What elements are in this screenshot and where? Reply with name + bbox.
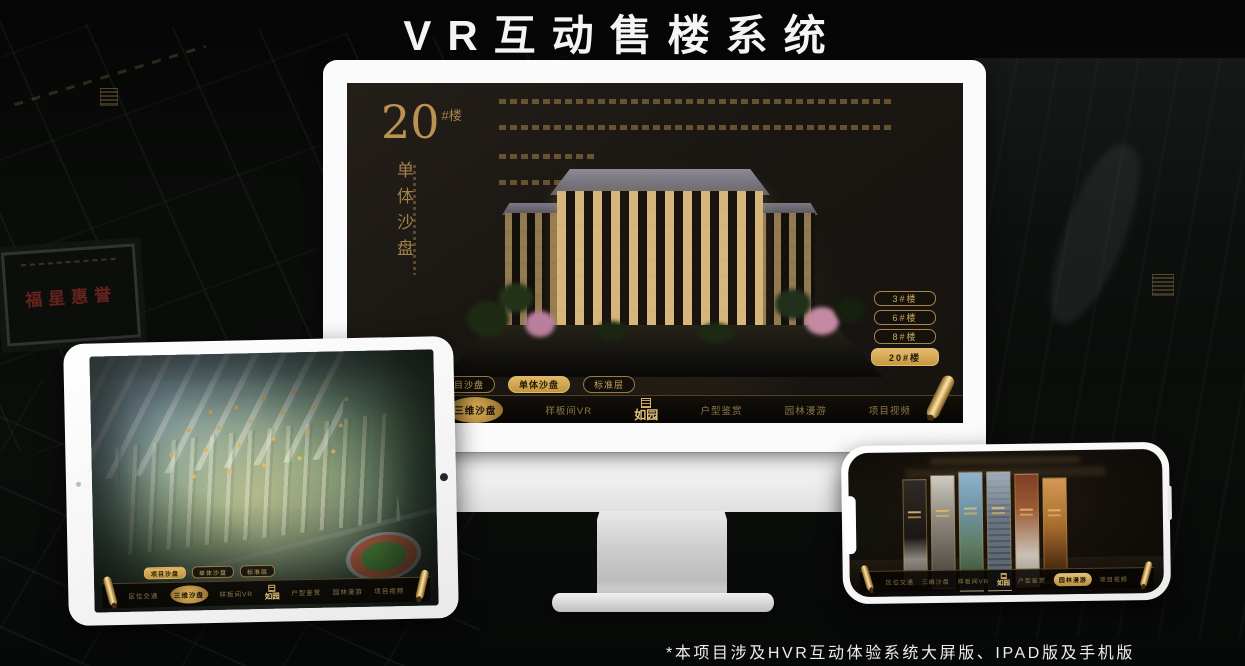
phone-side-button xyxy=(1167,486,1171,520)
nav-item-garden-roam[interactable]: 园林漫游 xyxy=(785,403,827,417)
nav-item-showroom-vr[interactable]: 样板间VR xyxy=(219,588,253,599)
panel-label-decor xyxy=(992,507,1005,509)
interior-beam xyxy=(930,456,1081,465)
ipad-screen: 项目沙盘 单体沙盘 标准层 区位交通 三维沙盘 样板间VR 如园 户型鉴赏 园林… xyxy=(89,349,438,612)
ipad-camera xyxy=(76,482,81,487)
ruyuan-logo[interactable]: 如园 xyxy=(634,398,658,421)
tab-single-sandbox[interactable]: 单体沙盘 xyxy=(192,566,234,579)
nav-item-location[interactable]: 区位交通 xyxy=(886,577,914,586)
nav-item-floorplans[interactable]: 户型鉴赏 xyxy=(291,587,321,598)
nav-item-3d-sandbox[interactable]: 三维沙盘 xyxy=(170,585,208,604)
tree xyxy=(499,283,533,313)
building-number: 20 xyxy=(381,95,440,149)
panel-label-decor xyxy=(908,511,921,513)
nav-item-showroom-vr[interactable]: 样板间VR xyxy=(545,403,592,417)
page-title: VR互动售楼系统 xyxy=(0,2,1245,63)
sandbox-subtabs: 项目沙盘 单体沙盘 标准层 xyxy=(433,376,635,393)
logo-text: 如园 xyxy=(634,409,658,421)
building-headline: 20#楼 xyxy=(381,99,462,145)
pink-tree xyxy=(525,311,555,337)
monitor-stand-neck xyxy=(597,511,727,597)
phone-screen: 区位交通 三维沙盘 样板间VR 如园 户型鉴赏 园林漫游 项目视频 xyxy=(848,449,1164,597)
poster-canvas: 福星惠誉 20#楼 单体沙盘 xyxy=(0,0,1245,666)
logo-text: 如园 xyxy=(265,593,280,601)
paragraph-line xyxy=(499,125,891,130)
background-seal-icon xyxy=(1152,274,1174,296)
phone-device: 区位交通 三维沙盘 样板间VR 如园 户型鉴赏 园林漫游 项目视频 xyxy=(841,442,1171,605)
nav-item-project-video[interactable]: 项目视频 xyxy=(869,403,911,417)
panel-label-decor xyxy=(936,509,949,511)
background-seal-icon xyxy=(100,88,118,106)
building-render xyxy=(557,191,763,329)
nav-item-project-video[interactable]: 项目视频 xyxy=(374,585,404,596)
tree xyxy=(597,321,627,341)
nav-item-project-video[interactable]: 项目视频 xyxy=(1100,574,1128,583)
seal-icon xyxy=(641,398,651,408)
tab-single-sandbox[interactable]: 单体沙盘 xyxy=(508,376,570,393)
phone-bottom-nav: 区位交通 三维沙盘 样板间VR 如园 户型鉴赏 园林漫游 项目视频 xyxy=(860,567,1154,592)
tree xyxy=(835,297,865,323)
tab-standard-floor[interactable]: 标准层 xyxy=(240,565,275,578)
panel-label-decor xyxy=(964,508,977,510)
plaque-small-text-line xyxy=(21,258,117,267)
panel-label-decor xyxy=(1020,508,1033,510)
floor-button-20-active[interactable]: 20#楼 xyxy=(871,348,939,366)
logo-text: 如园 xyxy=(997,580,1010,587)
background-plaque: 福星惠誉 xyxy=(1,243,141,346)
ipad-device: 项目沙盘 单体沙盘 标准层 区位交通 三维沙盘 样板间VR 如园 户型鉴赏 园林… xyxy=(63,336,459,626)
floor-button-6[interactable]: 6#楼 xyxy=(874,310,936,325)
building-subtitle-english-decor xyxy=(413,165,416,275)
tab-standard-floor[interactable]: 标准层 xyxy=(583,376,635,393)
ipad-home-button[interactable] xyxy=(440,473,448,481)
ruyuan-logo[interactable]: 如园 xyxy=(264,585,279,601)
paragraph-line xyxy=(499,99,891,104)
nav-item-floorplans[interactable]: 户型鉴赏 xyxy=(1018,575,1046,584)
nav-item-garden-roam[interactable]: 园林漫游 xyxy=(1054,572,1092,586)
nav-item-showroom-vr[interactable]: 样板间VR xyxy=(958,576,989,585)
plaque-text: 福星惠誉 xyxy=(24,279,118,310)
floor-button-3[interactable]: 3#楼 xyxy=(874,291,936,306)
phone-notch xyxy=(845,496,857,554)
panel-label-decor xyxy=(1048,509,1061,511)
tree xyxy=(699,323,733,343)
ruyuan-logo[interactable]: 如园 xyxy=(997,573,1010,587)
building-unit: #楼 xyxy=(442,108,462,123)
tab-project-sandbox[interactable]: 项目沙盘 xyxy=(144,567,186,580)
footnote-text: *本项目涉及HVR互动体验系统大屏版、IPAD版及手机版 xyxy=(666,639,1135,663)
nav-item-garden-roam[interactable]: 园林漫游 xyxy=(333,586,363,597)
nav-item-floorplans[interactable]: 户型鉴赏 xyxy=(701,403,743,417)
nav-item-location[interactable]: 区位交通 xyxy=(128,590,158,601)
pink-tree xyxy=(805,307,839,335)
monitor-stand-base xyxy=(552,593,774,612)
floor-button-group: 3#楼 6#楼 8#楼 20#楼 xyxy=(871,291,939,366)
nav-item-3d-sandbox[interactable]: 三维沙盘 xyxy=(447,397,503,423)
nav-item-3d-sandbox[interactable]: 三维沙盘 xyxy=(922,576,950,585)
floor-button-8[interactable]: 8#楼 xyxy=(874,329,936,344)
